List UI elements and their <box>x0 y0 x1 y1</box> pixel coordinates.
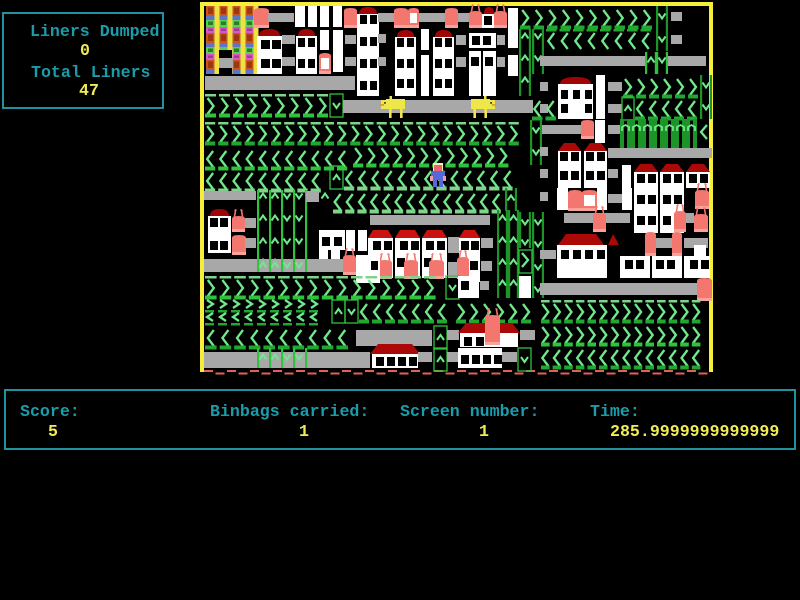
svg-text:Screen number:: Screen number: <box>400 402 539 421</box>
svg-text:285.9999999999999: 285.9999999999999 <box>610 422 779 441</box>
svg-text:0: 0 <box>80 41 90 60</box>
svg-text:1: 1 <box>299 422 309 441</box>
svg-text:Binbags carried:: Binbags carried: <box>210 402 369 421</box>
svg-text:5: 5 <box>48 422 58 441</box>
svg-text:Time:: Time: <box>590 402 640 421</box>
svg-text:Liners Dumped: Liners Dumped <box>30 22 159 41</box>
svg-text:1: 1 <box>479 422 489 441</box>
svg-text:Score:: Score: <box>20 402 80 421</box>
svg-text:47: 47 <box>79 81 99 100</box>
svg-text:Total Liners: Total Liners <box>31 63 151 82</box>
